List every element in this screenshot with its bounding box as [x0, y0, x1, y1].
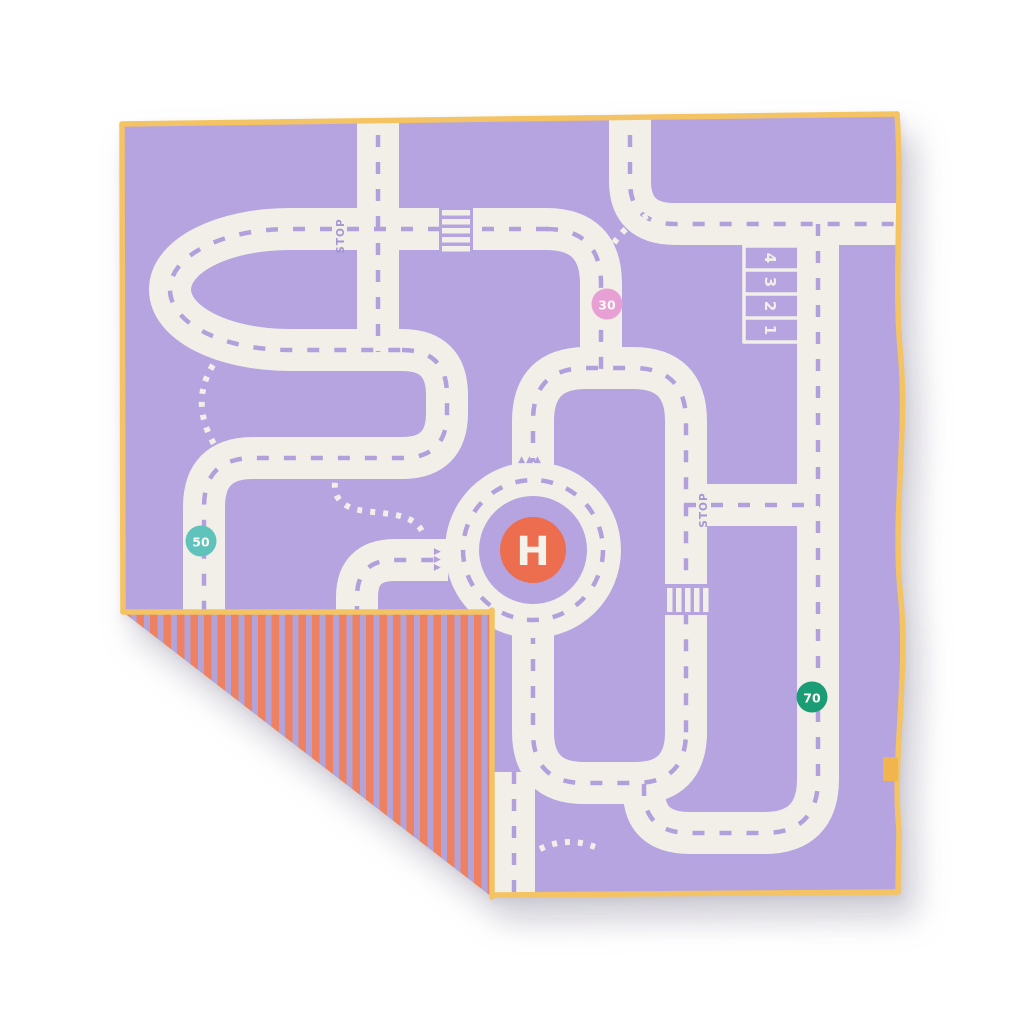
svg-text:50: 50	[192, 535, 210, 550]
stop-marking-west: STOP	[335, 218, 347, 253]
trim-left	[122, 124, 123, 612]
fabric-tag	[883, 757, 898, 781]
fold-striped-back	[123, 612, 492, 897]
stop-marking-east: STOP	[698, 492, 710, 527]
svg-text:30: 30	[598, 298, 616, 313]
yield-triangles-row: ▲▲▲	[518, 455, 542, 465]
parking-bay-number: 1	[761, 325, 779, 335]
product-photo-playmat: H	[0, 0, 1024, 1024]
svg-text:70: 70	[803, 691, 821, 706]
speed-sign-30: 30	[592, 289, 623, 320]
parking-bay-number: 4	[761, 253, 779, 263]
speed-sign-50: 50	[186, 526, 217, 557]
trim-bottom	[493, 892, 898, 895]
folded-corner	[123, 610, 492, 897]
helipad-label: H	[516, 529, 549, 575]
zebra-crossing-east	[662, 584, 710, 615]
parking-bay-number: 2	[761, 301, 779, 311]
speed-sign-70: 70	[797, 682, 828, 713]
playmat-blanket: H	[122, 108, 904, 897]
playmat-scene: H	[0, 0, 1024, 1024]
zebra-crossing-north	[439, 206, 473, 253]
yield-triangles-column: ▲▲▲	[432, 548, 442, 572]
parking-bay-number: 3	[761, 277, 779, 287]
